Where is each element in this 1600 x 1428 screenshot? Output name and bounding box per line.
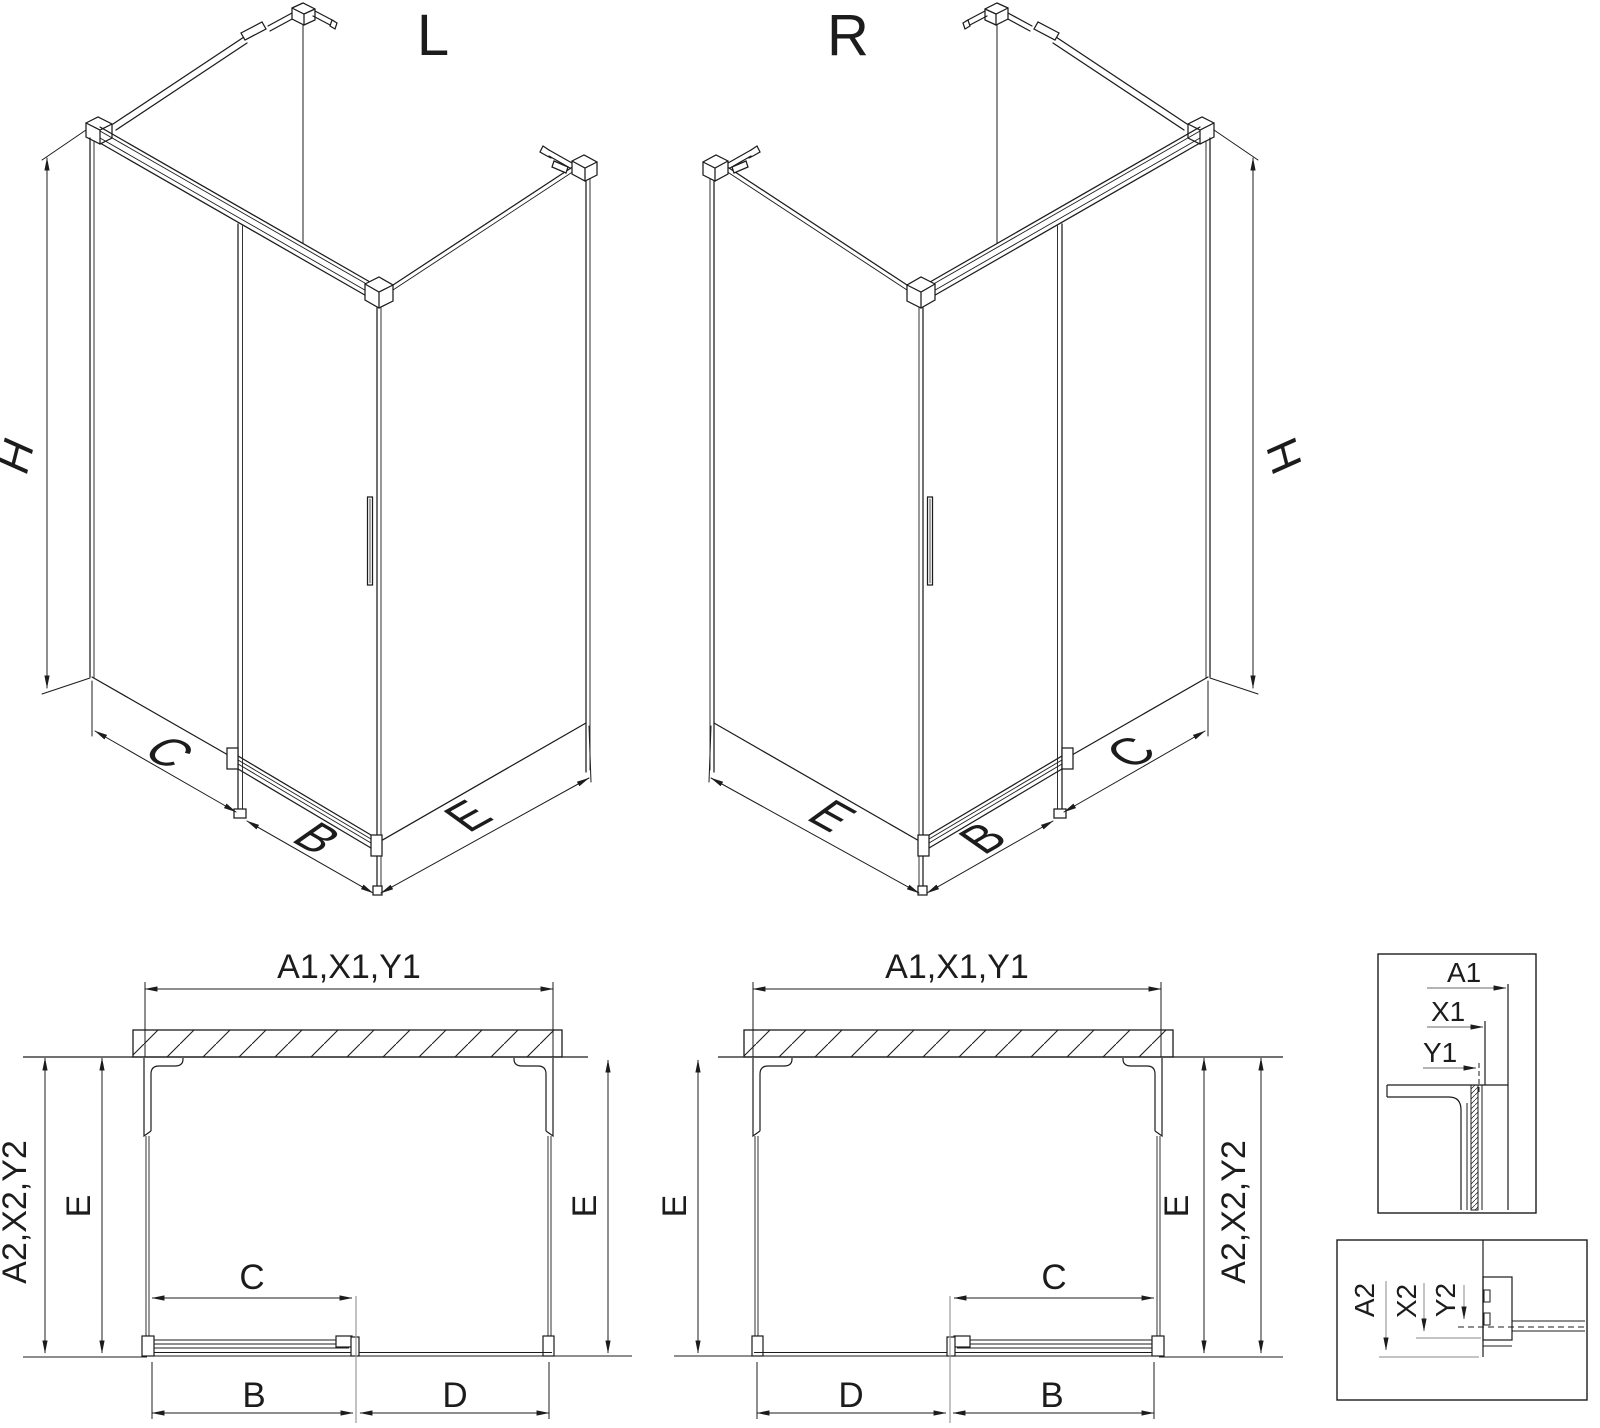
plan-left-dim-d: D — [442, 1376, 467, 1415]
plan-right-dim-e-left: E — [656, 1195, 694, 1218]
detail-bottom-dim-a2: A2 — [1349, 1283, 1380, 1317]
iso-right-dim-c: C — [1094, 728, 1169, 777]
detail-top-dim-y1: Y1 — [1423, 1037, 1457, 1068]
plan-right-dim-a1: A1,X1,Y1 — [885, 948, 1029, 986]
plan-left-dim-e-left: E — [60, 1195, 98, 1218]
shower-enclosure-technical-drawing: L R H C B E H C B E A1,X1,Y1 A2,X2,Y2 E … — [0, 0, 1600, 1423]
iso-left-dim-e: E — [432, 792, 505, 840]
iso-right-title: R — [827, 3, 869, 68]
iso-left-title: L — [417, 3, 449, 68]
plan-right-dim-e-right: E — [1158, 1195, 1196, 1218]
iso-left-dim-h: H — [0, 431, 43, 482]
detail-top-dim-x1: X1 — [1431, 996, 1465, 1027]
detail-bottom-dim-x2: X2 — [1391, 1284, 1422, 1318]
plan-right-dim-a2: A2,X2,Y2 — [1215, 1140, 1253, 1284]
plan-left-dim-a2: A2,X2,Y2 — [0, 1140, 34, 1284]
plan-left-wall-hatch — [133, 1030, 562, 1057]
detail-bottom-dim-y2: Y2 — [1430, 1283, 1461, 1317]
drawing-canvas: L R H C B E H C B E A1,X1,Y1 A2,X2,Y2 E … — [0, 0, 1600, 1423]
detail-top-dim-a1: A1 — [1447, 957, 1481, 988]
iso-right-dim-h: H — [1257, 431, 1310, 482]
detail-top-box — [1378, 954, 1536, 1213]
plan-left-dim-b: B — [242, 1376, 265, 1415]
iso-right-dim-e: E — [795, 792, 868, 840]
plan-left-dim-c: C — [239, 1258, 264, 1297]
plan-right-dim-b: B — [1040, 1376, 1063, 1415]
plan-right-wall-hatch — [744, 1030, 1173, 1057]
plan-right-dim-c: C — [1041, 1258, 1066, 1297]
plan-right-dim-d: D — [838, 1376, 863, 1415]
iso-left-dim-c: C — [131, 728, 206, 777]
plan-left-dim-a1: A1,X1,Y1 — [277, 948, 421, 986]
iso-right-geometry — [703, 3, 1258, 895]
detail-bottom-box — [1337, 1240, 1587, 1400]
plan-left-dim-e-right: E — [566, 1195, 604, 1218]
iso-left-geometry — [42, 3, 597, 895]
